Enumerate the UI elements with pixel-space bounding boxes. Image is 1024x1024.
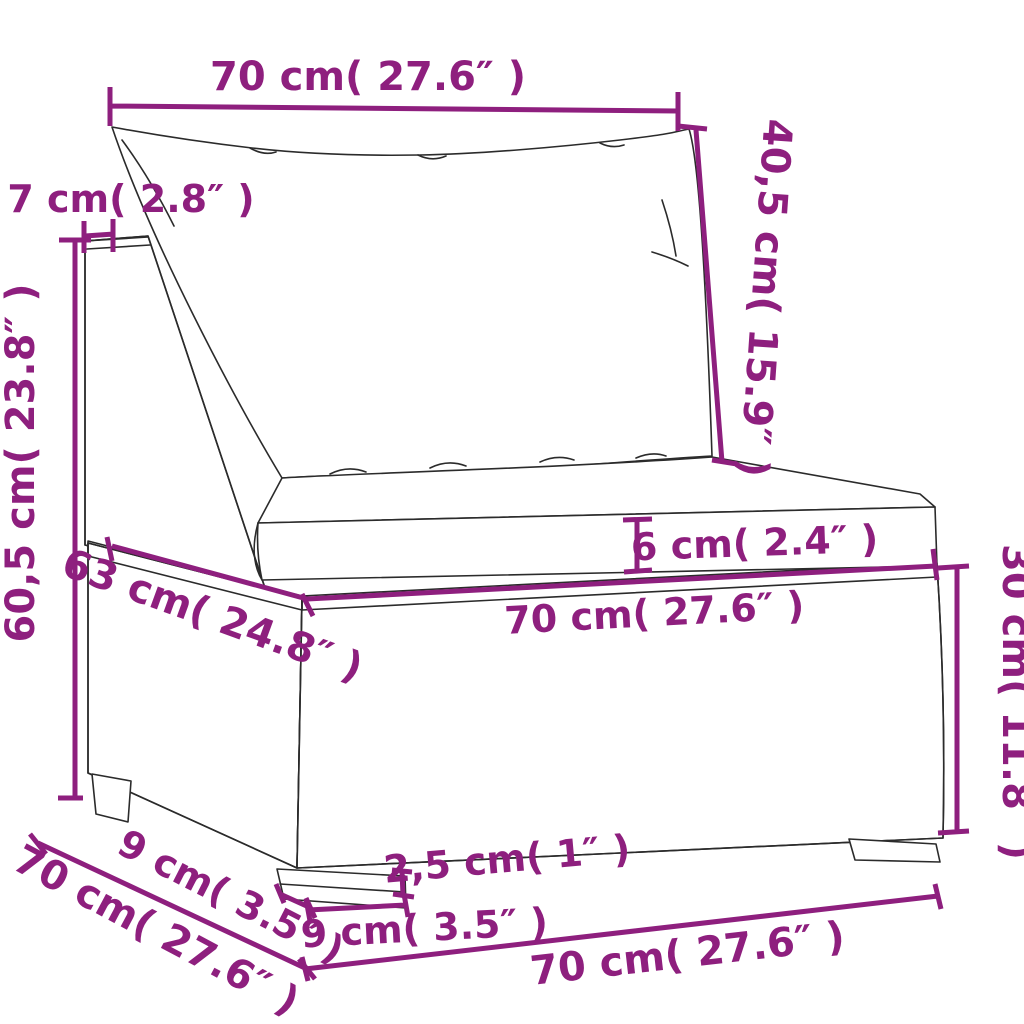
sofa-dimension-diagram: 70 cm( 27.6″ ) 7 cm( 2.8″ ) 60,5 cm( 23.…	[0, 0, 1024, 1024]
label-cushion-height: 40,5 cm( 15.9″ )	[730, 117, 801, 478]
label-back-height: 60,5 cm( 23.8″ )	[0, 284, 44, 643]
label-cushion-thickness: 6 cm( 2.4″ )	[630, 517, 879, 570]
leg-front-right	[849, 839, 940, 862]
label-top-width: 70 cm( 27.6″ )	[210, 54, 526, 100]
sofa-drawing	[85, 127, 944, 908]
label-base-height: 30 cm( 11.8″ )	[993, 544, 1024, 860]
leg-back-left	[92, 774, 131, 822]
label-panel-thickness: 7 cm( 2.8″ )	[7, 177, 254, 221]
diagram-stage: 70 cm( 27.6″ ) 7 cm( 2.8″ ) 60,5 cm( 23.…	[0, 0, 1024, 1024]
